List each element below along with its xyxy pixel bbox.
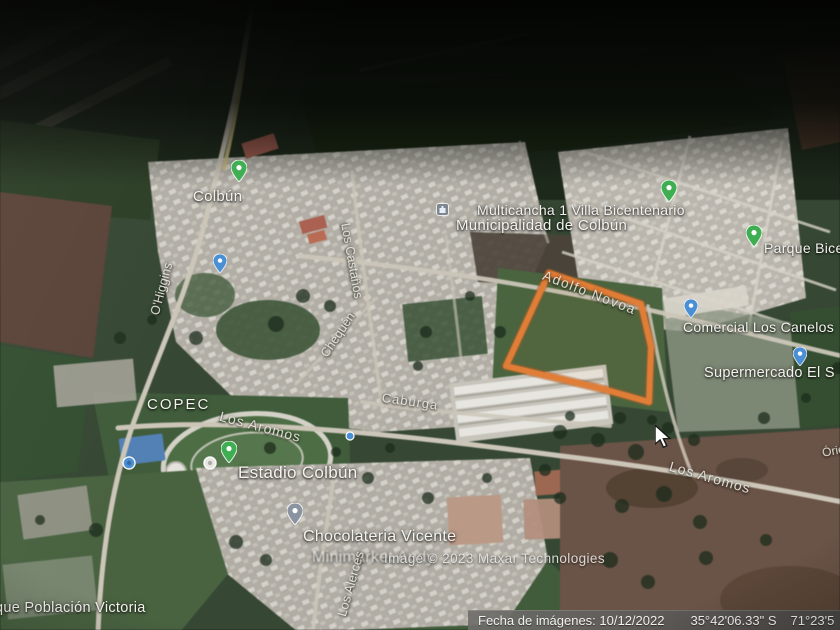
street-label-caburga: Caburga [381, 390, 439, 413]
street-label-los-aromos-west: Los Aromos [218, 408, 303, 445]
map-label-poblacion-victoria[interactable]: que Población Victoria [0, 600, 146, 616]
map-label-colbun[interactable]: Colbún [193, 188, 242, 205]
label-layer: ColbúnMulticancha 1 Villa BicentenarioMu… [0, 0, 840, 630]
map-label-estadio[interactable]: Estadio Colbún [238, 463, 358, 483]
map-label-comercial[interactable]: Comercial Los Canelos [683, 319, 834, 335]
map-label-municipalidad[interactable]: Municipalidad de Colbún [456, 217, 627, 234]
street-label-los-castanos: Los Castaños [338, 222, 365, 300]
street-label-adolfo-novoa: Adolfo Novoa [541, 268, 639, 318]
map-label-parque-bicentenario[interactable]: Parque Bicen [764, 240, 840, 256]
mouse-cursor [655, 425, 674, 454]
map-label-copec[interactable]: COPEC [147, 396, 210, 413]
status-bar: Fecha de imágenes: 10/12/2022 35°42'06.3… [468, 610, 840, 630]
street-label-los-aromos-east: Los Aromos [668, 458, 753, 497]
map-label-multicancha[interactable]: Multicancha 1 Villa Bicentenario [477, 202, 685, 218]
street-label-oriente: Órie [821, 442, 840, 460]
street-label-ohiggins: O'Higgins [148, 261, 175, 317]
map-label-chocolateria[interactable]: Chocolateria Vicente [303, 528, 456, 546]
google-earth-map-photo: ColbúnMulticancha 1 Villa BicentenarioMu… [0, 0, 840, 630]
map-label-supermercado[interactable]: Supermercado El S [704, 365, 835, 381]
imagery-date: Fecha de imágenes: 10/12/2022 [478, 613, 664, 628]
latitude-readout: 35°42'06.33" S [690, 613, 776, 628]
street-label-chequen: Chequén [318, 310, 358, 360]
maxar-watermark: Image © 2023 Maxar Technologies [384, 551, 605, 566]
longitude-readout: 71°23'5 [791, 613, 835, 628]
